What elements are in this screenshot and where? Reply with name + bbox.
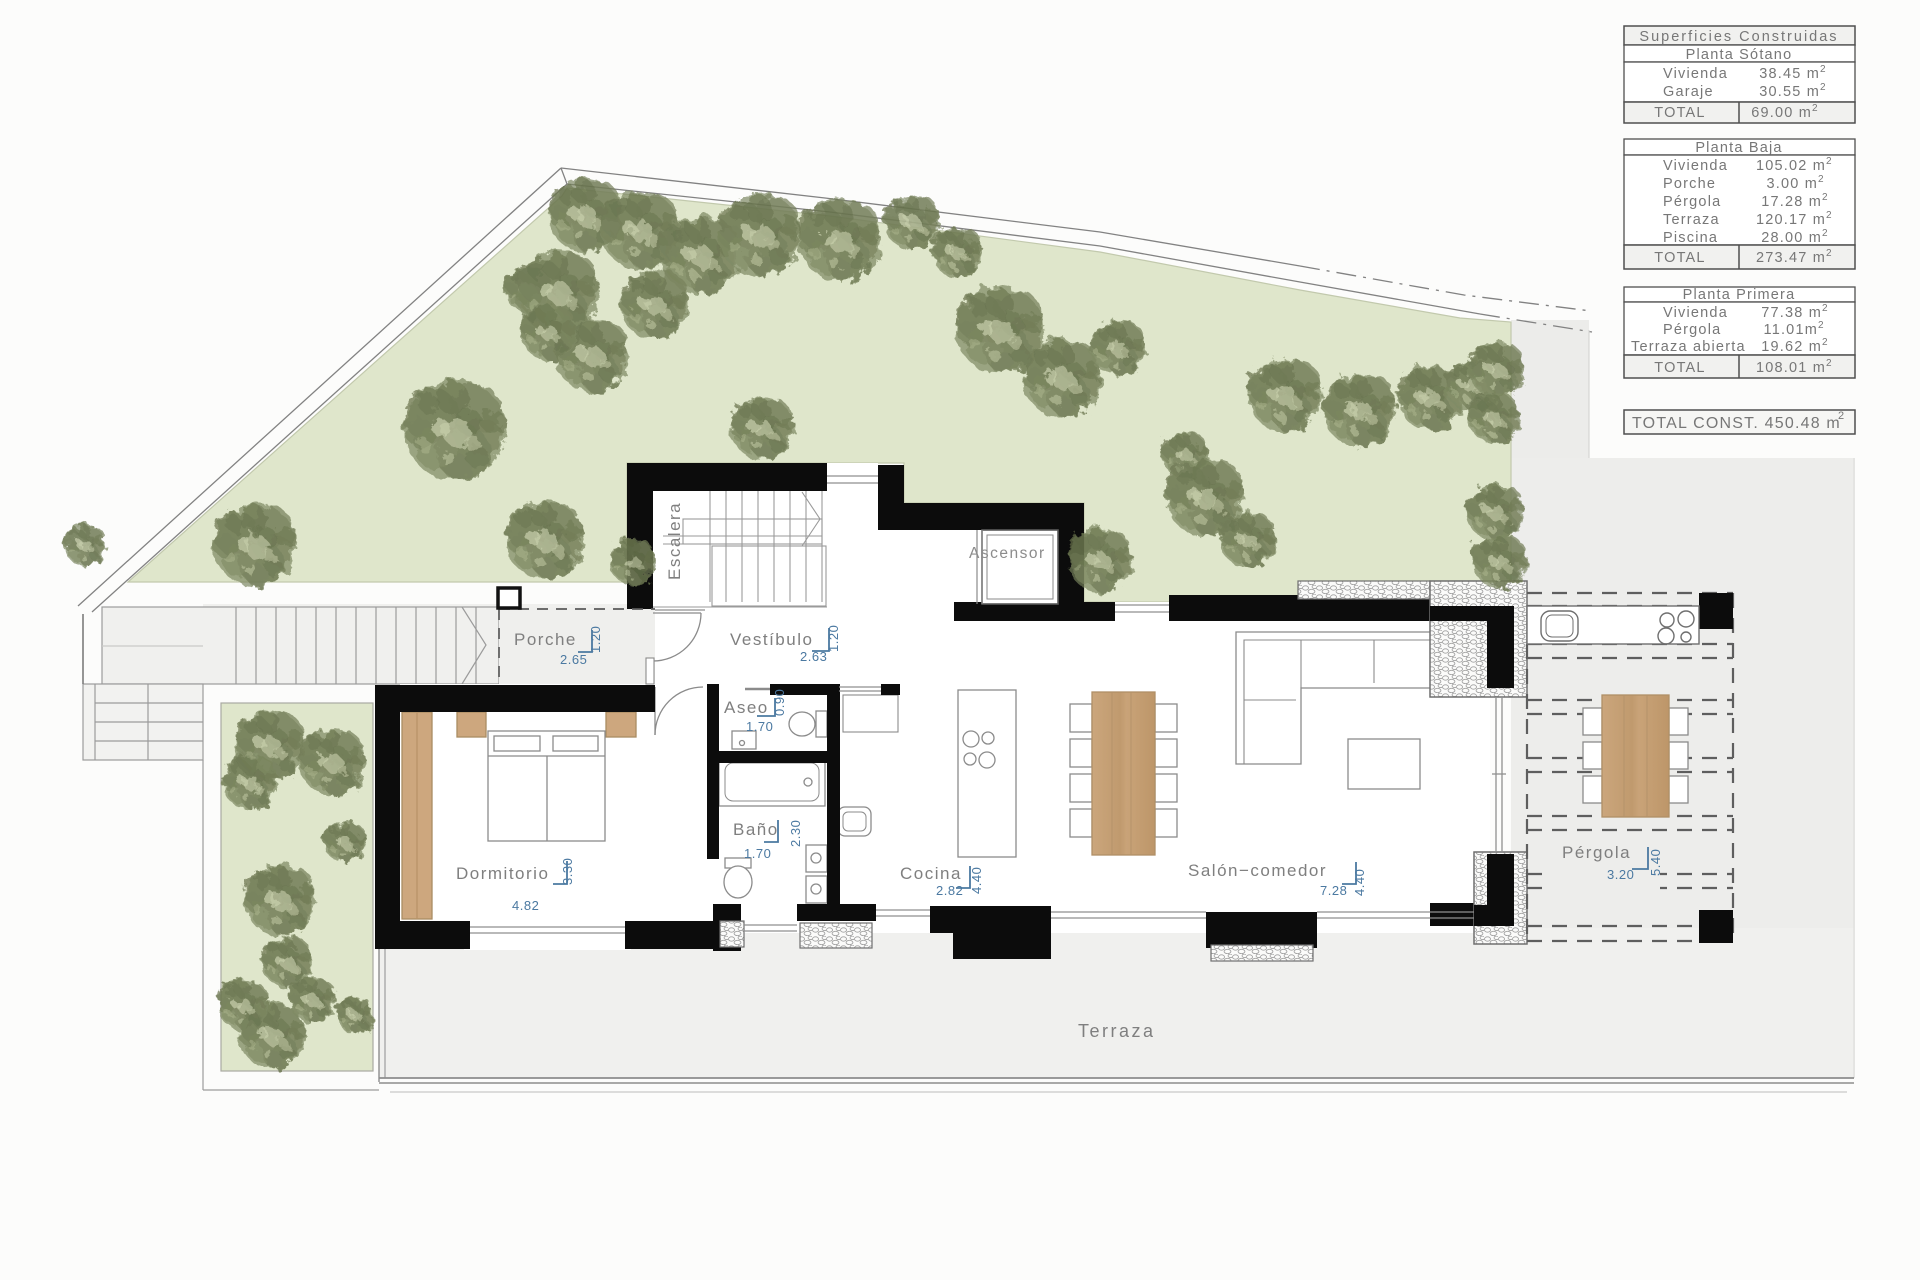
svg-text:2: 2 xyxy=(1822,303,1829,314)
svg-text:TOTAL: TOTAL xyxy=(1654,105,1705,121)
svg-text:38.45 m: 38.45 m xyxy=(1759,66,1820,82)
svg-text:Pérgola: Pérgola xyxy=(1562,843,1631,862)
svg-text:Escalera: Escalera xyxy=(665,502,684,580)
svg-text:108.01 m: 108.01 m xyxy=(1756,360,1826,376)
svg-text:2: 2 xyxy=(1812,103,1819,114)
svg-text:2: 2 xyxy=(1826,156,1833,167)
svg-text:Planta Baja: Planta Baja xyxy=(1695,140,1782,156)
svg-text:2: 2 xyxy=(1822,228,1829,239)
svg-text:17.28 m: 17.28 m xyxy=(1761,194,1822,210)
svg-text:2: 2 xyxy=(1826,358,1833,369)
svg-text:Planta Sótano: Planta Sótano xyxy=(1686,47,1793,63)
svg-text:Planta Primera: Planta Primera xyxy=(1683,287,1796,303)
svg-text:77.38 m: 77.38 m xyxy=(1761,305,1822,321)
svg-text:Aseo: Aseo xyxy=(724,698,769,717)
svg-text:1.70: 1.70 xyxy=(744,846,771,861)
svg-text:Porche: Porche xyxy=(1663,176,1716,192)
svg-text:2.82: 2.82 xyxy=(936,883,963,898)
svg-text:11.01m: 11.01m xyxy=(1764,322,1819,338)
svg-text:TOTAL CONST. 450.48 m: TOTAL CONST. 450.48 m xyxy=(1632,415,1841,432)
svg-text:Vestíbulo: Vestíbulo xyxy=(730,630,813,649)
svg-text:Pérgola: Pérgola xyxy=(1663,194,1721,210)
svg-text:Cocina: Cocina xyxy=(900,864,962,883)
svg-text:Salón−comedor: Salón−comedor xyxy=(1188,861,1327,880)
svg-text:Dormitorio: Dormitorio xyxy=(456,864,549,883)
svg-text:2: 2 xyxy=(1818,320,1825,331)
svg-text:4.40: 4.40 xyxy=(1352,869,1367,896)
svg-text:Vivienda: Vivienda xyxy=(1663,305,1728,321)
svg-text:7.28: 7.28 xyxy=(1320,883,1347,898)
svg-text:Piscina: Piscina xyxy=(1663,230,1718,246)
svg-text:3.20: 3.20 xyxy=(1607,867,1634,882)
svg-text:2: 2 xyxy=(1826,210,1833,221)
svg-text:1.70: 1.70 xyxy=(746,719,773,734)
svg-text:Superficies Construidas: Superficies Construidas xyxy=(1639,29,1838,45)
svg-text:28.00 m: 28.00 m xyxy=(1761,230,1822,246)
svg-text:TOTAL: TOTAL xyxy=(1654,250,1705,266)
svg-text:TOTAL: TOTAL xyxy=(1654,360,1705,376)
svg-text:2.65: 2.65 xyxy=(560,652,587,667)
svg-text:Terraza abierta: Terraza abierta xyxy=(1631,339,1746,355)
svg-text:2: 2 xyxy=(1822,192,1829,203)
svg-text:Vivienda: Vivienda xyxy=(1663,66,1728,82)
svg-text:105.02 m: 105.02 m xyxy=(1756,158,1826,174)
svg-text:Garaje: Garaje xyxy=(1663,84,1714,100)
svg-text:4.82: 4.82 xyxy=(512,898,539,913)
svg-text:Terraza: Terraza xyxy=(1078,1021,1156,1041)
svg-text:5.40: 5.40 xyxy=(1648,849,1663,876)
svg-text:2.30: 2.30 xyxy=(788,820,803,847)
svg-text:1.20: 1.20 xyxy=(588,626,603,653)
svg-text:Ascensor: Ascensor xyxy=(969,545,1046,562)
svg-text:Baño: Baño xyxy=(733,820,779,839)
svg-text:2: 2 xyxy=(1826,248,1833,259)
svg-text:3.00 m: 3.00 m xyxy=(1766,176,1818,192)
svg-text:2: 2 xyxy=(1822,337,1829,348)
svg-text:2: 2 xyxy=(1838,410,1845,422)
svg-text:19.62 m: 19.62 m xyxy=(1761,339,1822,355)
svg-text:120.17 m: 120.17 m xyxy=(1756,212,1826,228)
svg-text:30.55 m: 30.55 m xyxy=(1759,84,1820,100)
svg-text:69.00 m: 69.00 m xyxy=(1751,105,1812,121)
svg-text:Pérgola: Pérgola xyxy=(1663,322,1721,338)
svg-text:4.40: 4.40 xyxy=(969,867,984,894)
svg-text:2: 2 xyxy=(1818,174,1825,185)
svg-text:2: 2 xyxy=(1820,64,1827,75)
svg-text:Terraza: Terraza xyxy=(1663,212,1720,228)
svg-text:Porche: Porche xyxy=(514,630,577,649)
svg-text:2: 2 xyxy=(1820,82,1827,93)
svg-text:Vivienda: Vivienda xyxy=(1663,158,1728,174)
svg-text:273.47 m: 273.47 m xyxy=(1756,250,1826,266)
